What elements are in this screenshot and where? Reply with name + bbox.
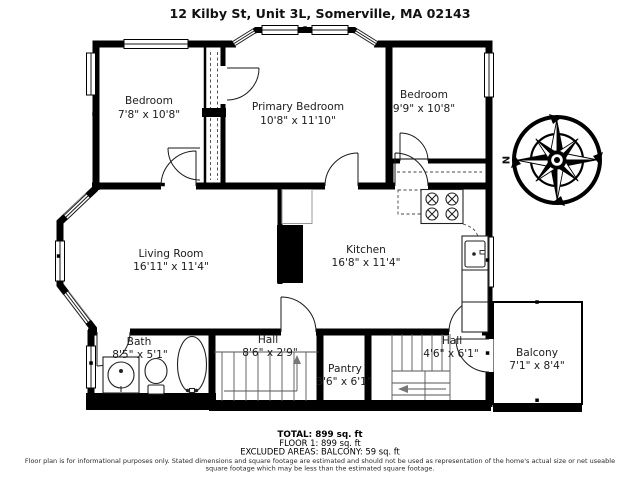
toilet [145, 359, 167, 395]
room-bedroom-left-name: Bedroom [125, 95, 173, 107]
room-hall-rear-dims: 4'6" x 6'1" [423, 348, 479, 360]
kitchen-sink [462, 236, 488, 332]
chimney [277, 225, 303, 283]
wall [86, 393, 216, 410]
room-hall-rear-name: Hall [442, 335, 462, 347]
kitchen-cabinet [282, 190, 312, 224]
room-living-room-dims: 16'11" x 11'4" [133, 261, 209, 273]
room-bedroom-right-name: Bedroom [400, 89, 448, 101]
floor-plan-page: 12 Kilby St, Unit 3L, Somerville, MA 021… [0, 0, 640, 480]
window [56, 241, 65, 281]
window [87, 346, 96, 388]
room-balcony-name: Balcony [516, 347, 558, 359]
room-primary-bedroom-name: Primary Bedroom [252, 101, 344, 113]
room-bedroom-left-dims: 7'8" x 10'8" [118, 109, 180, 121]
window [124, 40, 188, 49]
bathtub [178, 337, 207, 393]
floor-plan: 12 Kilby St, Unit 3L, Somerville, MA 021… [0, 0, 640, 480]
room-pantry-dims: 3'6" x 6'1" [316, 376, 372, 388]
bath-sink [103, 357, 139, 393]
room-primary-bedroom-dims: 10'8" x 11'10" [260, 115, 336, 127]
compass-hub [554, 157, 560, 163]
room-kitchen-name: Kitchen [346, 244, 386, 256]
room-bedroom-right-dims: 9'9" x 10'8" [393, 103, 455, 115]
stove [421, 190, 463, 224]
room-bath-name: Bath [127, 336, 152, 348]
room-kitchen-dims: 16'8" x 11'4" [331, 257, 400, 269]
room-balcony-dims: 7'1" x 8'4" [509, 360, 565, 372]
closet-between-bedrooms [202, 47, 226, 184]
room-hall-front-name: Hall [258, 334, 278, 346]
room-bath-dims: 8'5" x 5'1" [112, 349, 168, 361]
closet-divider-wall [202, 108, 226, 117]
balcony-wall [493, 403, 582, 412]
room-hall-front-dims: 8'6" x 2'9" [242, 347, 298, 359]
window [262, 26, 298, 35]
window [485, 53, 494, 97]
room-pantry-name: Pantry [328, 363, 362, 375]
page-title: 12 Kilby St, Unit 3L, Somerville, MA 021… [170, 6, 471, 21]
wall [209, 400, 491, 411]
room-living-room-name: Living Room [138, 248, 203, 260]
window [312, 26, 348, 35]
disclaimer-line-2: square footage which may be less than th… [206, 465, 435, 473]
window [87, 53, 96, 95]
compass-north-label: N [502, 156, 513, 164]
excluded-areas: EXCLUDED AREAS: BALCONY: 59 sq. ft [240, 447, 400, 457]
